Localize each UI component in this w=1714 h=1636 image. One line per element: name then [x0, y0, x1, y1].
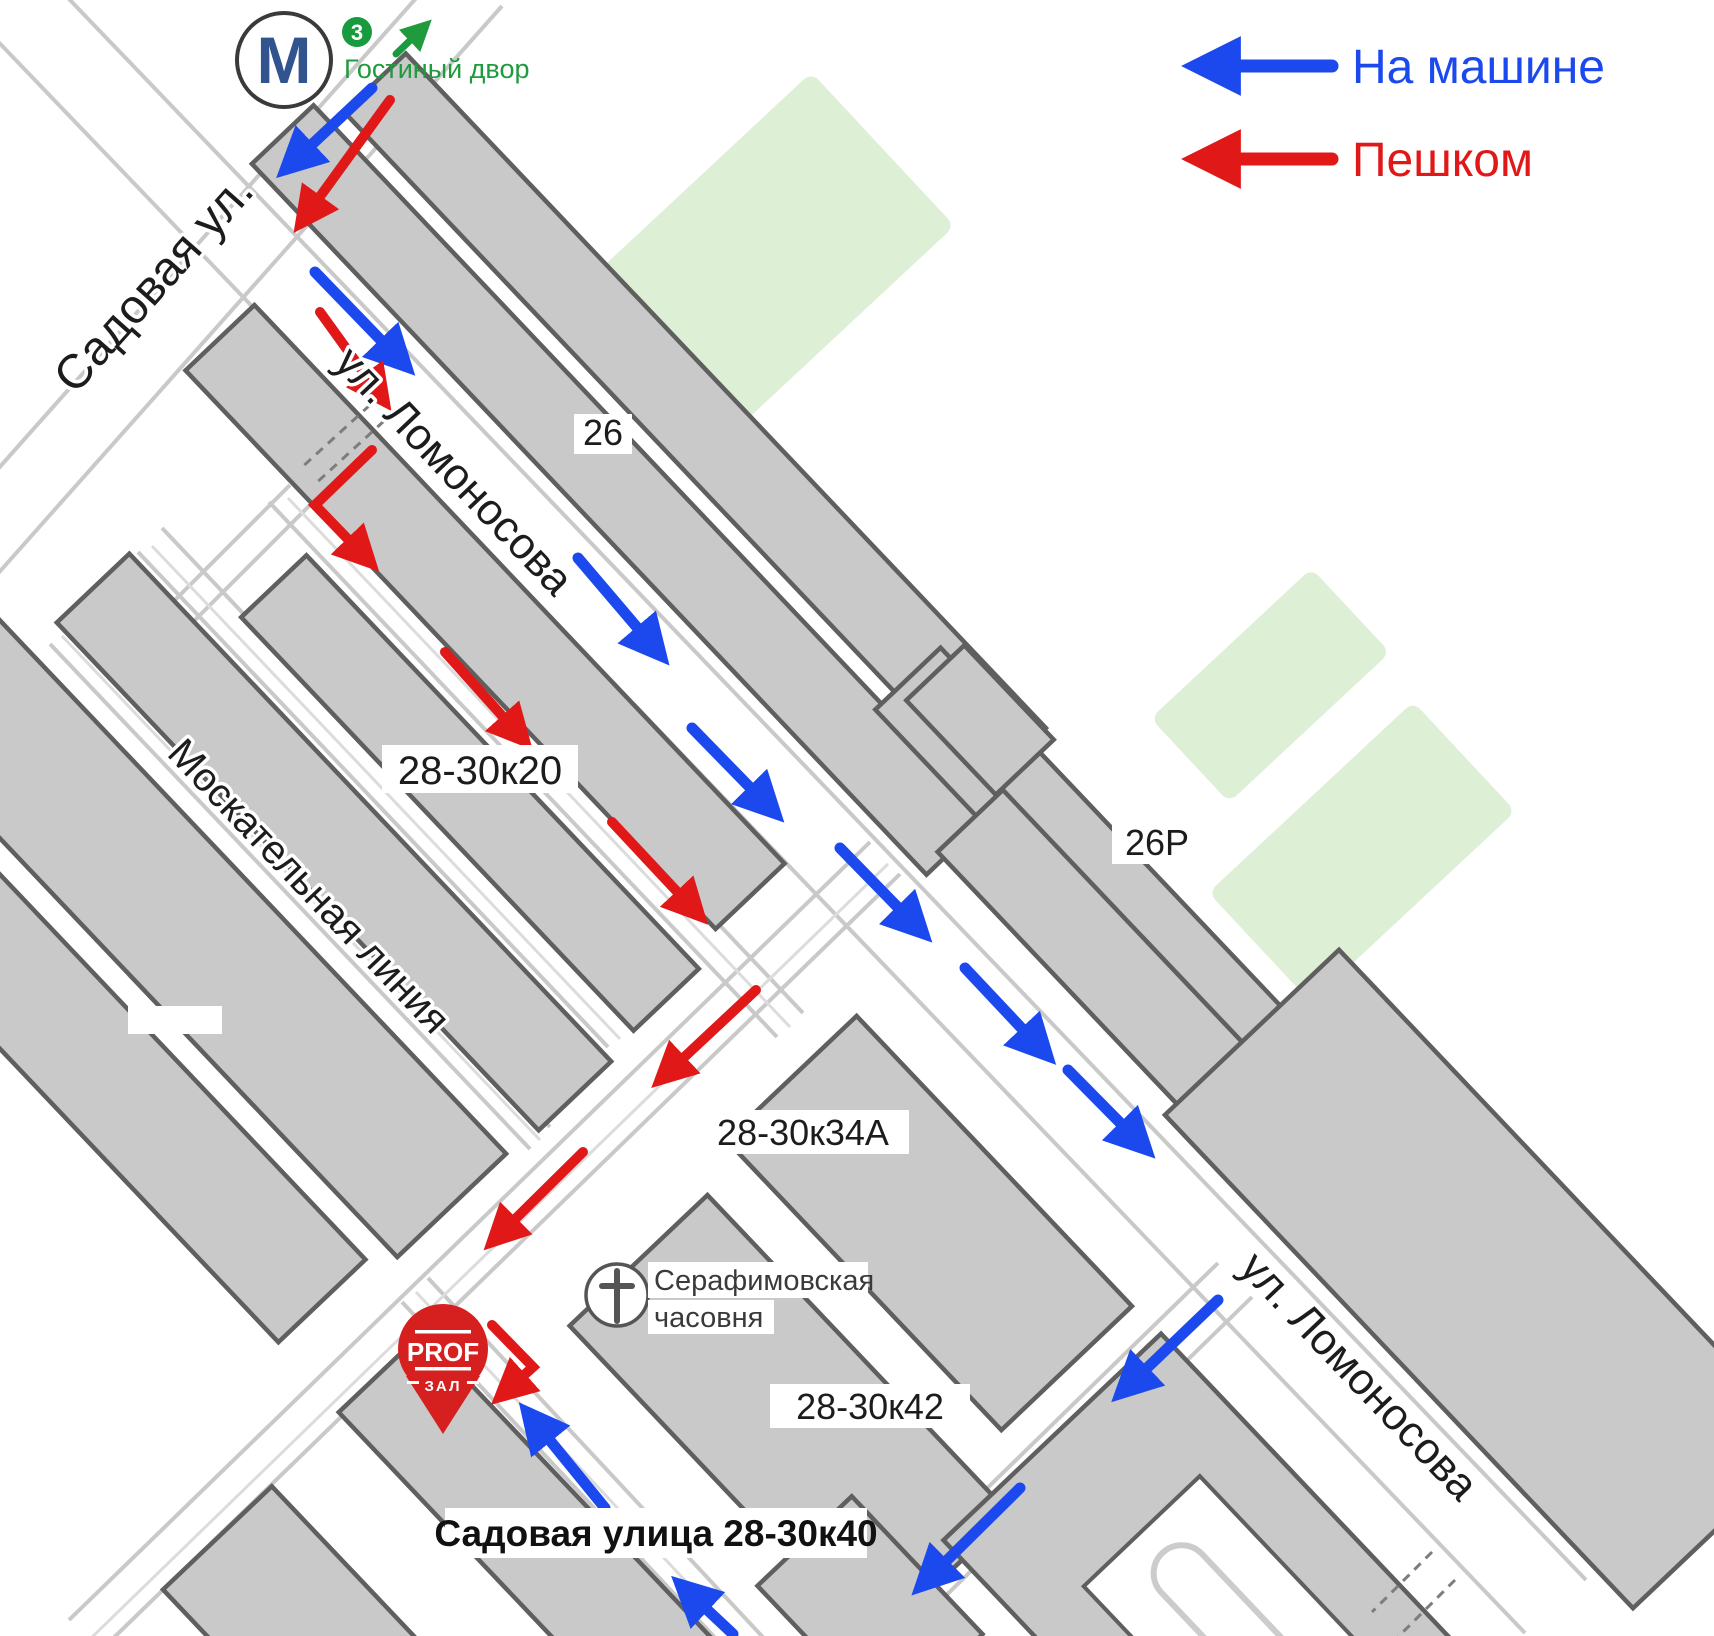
building-label-k34a: 28-30к34А	[717, 1112, 889, 1153]
legend-car-label: На машине	[1352, 41, 1605, 94]
legend: На машине Пешком	[1202, 41, 1605, 187]
metro-m-letter: М	[257, 23, 312, 97]
pin-label-zal: ЗАЛ	[425, 1378, 462, 1395]
route-map: Садовая ул. ул. Ломоносова ул. Ломоносов…	[0, 0, 1714, 1636]
building-label-26r: 26Р	[1125, 822, 1189, 863]
car-route-arrow	[840, 848, 920, 930]
metro-station-label: Гостиный двор	[344, 54, 530, 84]
walk-route-arrow	[663, 990, 756, 1077]
pin-dash-left	[407, 1381, 419, 1384]
pin-label-prof: PROF	[407, 1337, 479, 1367]
map-canvas: Садовая ул. ул. Ломоносова ул. Ломоносов…	[0, 0, 1714, 1636]
car-route-arrow	[965, 968, 1044, 1052]
metro-line3-number: 3	[351, 20, 363, 45]
chapel-label-line2: часовня	[654, 1302, 763, 1334]
blank-plate	[128, 1006, 222, 1034]
destination-address-label: Садовая улица 28-30к40	[434, 1513, 877, 1554]
metro-exit-arrow-icon	[396, 27, 424, 54]
legend-walk-label: Пешком	[1352, 134, 1533, 187]
building-label-k20: 28-30к20	[398, 749, 562, 793]
building-label-k42: 28-30к42	[796, 1386, 944, 1427]
pin-dash-right	[467, 1381, 479, 1384]
chapel-label-line1: Серафимовская	[654, 1265, 874, 1297]
building-corner	[163, 1486, 437, 1636]
building-label-26: 26	[583, 412, 623, 453]
pin-rule-top	[415, 1330, 471, 1334]
pin-rule-bottom	[415, 1367, 471, 1371]
